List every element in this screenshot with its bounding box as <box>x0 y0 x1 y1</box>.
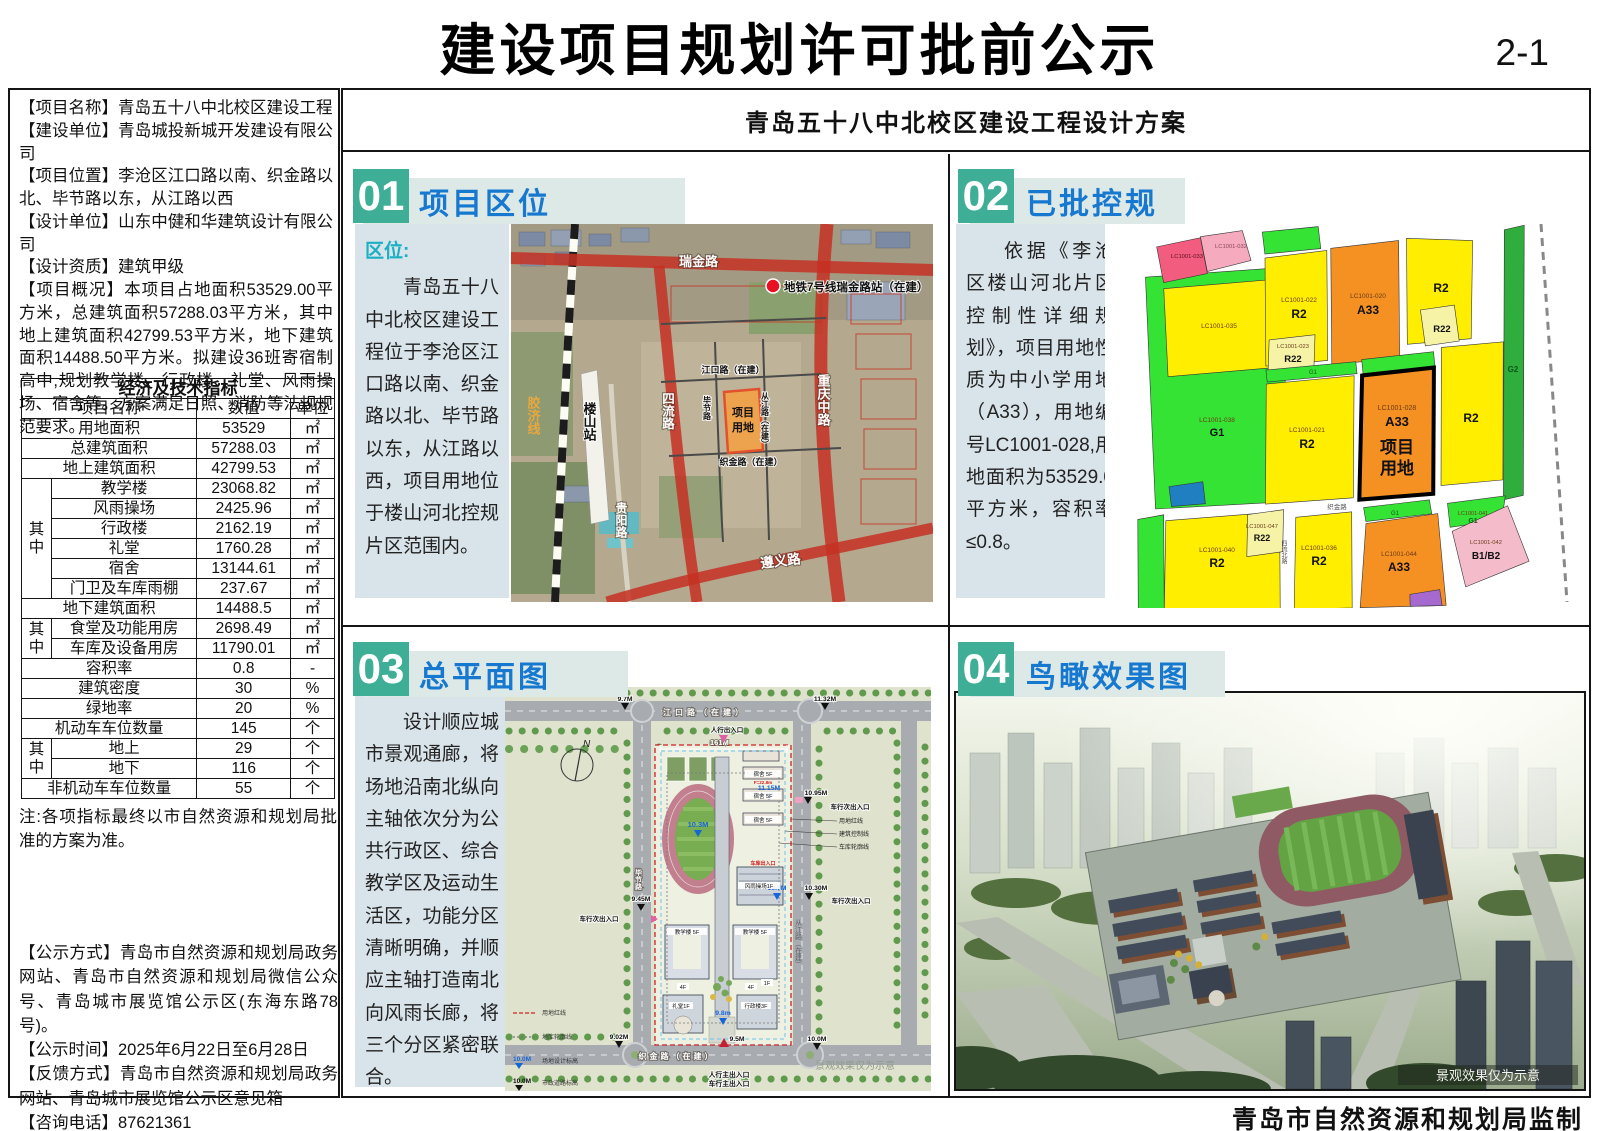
cell-value: 42799.53 <box>197 459 291 479</box>
notice-text: 87621361 <box>118 1114 191 1131</box>
panel-master-plan: 总平面图 03 设计顺应城市景观通廊，将场地沿南北纵向主轴依次分为公共行政区、综… <box>343 627 948 1096</box>
cell-name: 车库及设备用房 <box>51 639 196 659</box>
location-text-card: 区位: 青岛五十八中北校区建设工程位于李沧区江口路以南、织金路以北、毕节路以东，… <box>355 224 509 598</box>
bld-label-dorm: 宿舍 5F <box>754 770 774 778</box>
parcel-code: LC1001-040 <box>1199 547 1235 554</box>
plan-text-card: 依据《李沧区楼山河北片区控制性详细规划》，项目用地性质为中小学用地（A33），用… <box>956 224 1124 598</box>
cell-value: 145 <box>197 719 291 739</box>
site-label-line2: 用地 <box>1380 458 1414 478</box>
parcel-use: G1 <box>1309 370 1318 376</box>
birdseye-render-image: 景观效果仅为示意 <box>954 691 1586 1091</box>
bld-label-admin: 行政楼3F <box>745 1002 769 1010</box>
cell-name: 绿地率 <box>22 699 197 719</box>
cell-value: 53529 <box>197 419 291 439</box>
cell-name: 门卫及车库雨棚 <box>51 579 196 599</box>
bld-label-dorm: 宿舍 5F <box>754 792 774 800</box>
table-row: 其中食堂及功能用房2698.49㎡ <box>22 619 335 639</box>
info-label: 【项目位置】 <box>19 167 118 185</box>
congjiang-road-label: 从江路（在建） <box>760 392 770 448</box>
road-label-top: 江口路（在建） <box>663 707 747 717</box>
info-label: 【建设单位】 <box>19 122 118 140</box>
cell-value: 2425.96 <box>197 499 291 519</box>
section-title: 项目区位 <box>419 179 551 223</box>
cell-unit: 个 <box>291 759 335 779</box>
elev-label: 9.45M <box>632 896 651 903</box>
cell-unit: ㎡ <box>291 459 335 479</box>
table-note: 注:各项指标最终以市自然资源和规划局批准的方案为准。 <box>19 806 337 854</box>
cell-name: 礼堂 <box>51 539 196 559</box>
bld-label-hall: 礼堂1F <box>672 1002 690 1010</box>
elev-label: 11.15M <box>758 785 781 792</box>
project-info-sidebar: 【项目名称】青岛五十八中北校区建设工程 【建设单位】青岛城投新城开发建设有限公司… <box>8 88 340 1098</box>
section-number-badge: 01 <box>353 169 409 223</box>
table-row: 容积率0.8- <box>22 659 335 679</box>
table-row: 地下116个 <box>22 759 335 779</box>
parcel-code: LC1001-028 <box>1378 405 1417 412</box>
cell-unit: ㎡ <box>291 639 335 659</box>
info-label: 【设计单位】 <box>19 213 118 231</box>
col-header: 数值 <box>197 399 291 419</box>
notice-label: 【反馈方式】 <box>19 1065 120 1083</box>
north-label: N <box>583 739 591 750</box>
cell-name: 风雨操场 <box>51 499 196 519</box>
table-row: 绿地率20% <box>22 699 335 719</box>
panel-approved-plan: 已批控规 02 依据《李沧区楼山河北片区控制性详细规划》，项目用地性质为中小学用… <box>950 154 1589 625</box>
section-number-badge: 04 <box>958 642 1014 696</box>
cell-unit: ㎡ <box>291 599 335 619</box>
elev-label: 10.0M <box>808 1036 827 1043</box>
cell-value: 237.67 <box>197 579 291 599</box>
cell-group: 其中 <box>22 619 52 659</box>
location-label: 区位: <box>365 236 499 268</box>
parcel-use: G2 <box>1508 365 1519 374</box>
dim-label: 161M <box>710 738 729 747</box>
plan-watermark: 景观效果仅为示意 <box>815 1059 895 1072</box>
loushan-station-label: 楼山站 <box>582 401 597 442</box>
table-row: 总建筑面积57288.03㎡ <box>22 439 335 459</box>
cell-unit: ㎡ <box>291 479 335 499</box>
table-row: 其中地上29个 <box>22 739 335 759</box>
cell-name: 地下 <box>51 759 196 779</box>
cell-unit: 个 <box>291 739 335 759</box>
parcel-use: R2 <box>1299 437 1315 451</box>
cell-name: 地上建筑面积 <box>22 459 197 479</box>
road-label: 四流北路 <box>1280 540 1287 565</box>
elev-label: 10.3M <box>688 820 709 829</box>
table-row: 宿舍13144.61㎡ <box>22 559 335 579</box>
section-title: 已批控规 <box>1026 179 1158 223</box>
cell-unit: ㎡ <box>291 559 335 579</box>
callout-garage-line: 车库轮廓线 <box>839 843 869 851</box>
col-header: 项目名称 <box>22 399 197 419</box>
info-line-builder: 【建设单位】青岛城投新城开发建设有限公司 <box>19 120 333 166</box>
publicity-notices: 【公示方式】青岛市自然资源和规划局政务网站、青岛市自然资源和规划局微信公众号、青… <box>19 941 338 1131</box>
site-plan-map: N 161M 9.7M 11.32M 人行出入口 <box>505 687 931 1091</box>
cell-name: 地上 <box>51 739 196 759</box>
cell-value: 0.8 <box>197 659 291 679</box>
parcel-use: G1 <box>1391 511 1400 517</box>
info-line-location: 【项目位置】李沧区江口路以南、织金路以北、毕节路以东，从江路以西 <box>19 165 333 211</box>
callout-control-line: 建筑控制线 <box>839 830 869 838</box>
cell-unit: ㎡ <box>291 519 335 539</box>
col-header: 单位 <box>291 399 335 419</box>
cell-value: 2698.49 <box>197 619 291 639</box>
notice-feedback: 【反馈方式】青岛市自然资源和规划局政务网站、青岛城市展览馆公示区意见箱 <box>19 1062 338 1111</box>
section-number-badge: 03 <box>353 642 409 696</box>
parcel-code: LC1001-032 <box>1215 244 1247 250</box>
zoning-map: LC1001-033 LC1001-032 LC1001-035 LC1001-… <box>1105 210 1587 608</box>
design-scheme-frame: 青岛五十八中北校区建设工程设计方案 项目区位 01 区位: 青岛五十八中北校区建… <box>341 88 1591 1098</box>
parcel-code: LC1001-033 <box>1171 254 1203 260</box>
parcel-use: R2 <box>1433 281 1449 295</box>
info-label: 【设计资质】 <box>19 258 118 276</box>
cell-value: 55 <box>197 779 291 799</box>
notice-label: 【公示方式】 <box>19 944 120 962</box>
parcel-use: R22 <box>1254 533 1271 543</box>
parcel-use: B1/B2 <box>1472 551 1501 562</box>
project-site-parcel <box>724 389 763 453</box>
zhijin-road-label: 织金路（在建） <box>719 456 782 467</box>
chongqing-road-label: 重庆中路 <box>816 373 832 426</box>
elev-label: 11.32M <box>814 696 837 703</box>
cell-value: 11790.01 <box>197 639 291 659</box>
entry-label: 车行主出入口 <box>709 1079 750 1088</box>
east-road <box>901 701 917 1065</box>
cell-value: 57288.03 <box>197 439 291 459</box>
cell-name: 机动车车位数量 <box>22 719 197 739</box>
siliu-road-label: 四流路 <box>660 392 674 430</box>
supervisor-footer: 青岛市自然资源和规划局监制 <box>1232 1100 1583 1131</box>
info-text: 建筑甲级 <box>118 258 184 276</box>
info-line-project-name: 【项目名称】青岛五十八中北校区建设工程 <box>19 97 333 120</box>
parcel-use: R2 <box>1209 556 1225 570</box>
parcel-use: R2 <box>1463 411 1479 425</box>
cell-name: 非机动车车位数量 <box>22 779 197 799</box>
cell-value: 20 <box>197 699 291 719</box>
callout-red-line: 用地红线 <box>839 817 863 825</box>
bld-label-floors: 4F <box>680 985 687 991</box>
cell-name: 用地面积 <box>22 419 197 439</box>
section-title: 总平面图 <box>419 652 551 696</box>
cell-group: 其中 <box>22 739 52 779</box>
legend-garage-line: 地库轮廓线 <box>542 1033 572 1041</box>
cell-value: 29 <box>197 739 291 759</box>
satellite-location-map: 地铁7号线瑞金路站（在建） 瑞金路 胶济线 楼山站 四流路 重庆中路 贵阳路 遵… <box>511 224 933 602</box>
table-row: 地下建筑面积14488.5㎡ <box>22 599 335 619</box>
table-row: 其中教学楼23068.82㎡ <box>22 479 335 499</box>
parcel-use: G1 <box>1468 518 1477 525</box>
indicator-table: 经济及技术指标 项目名称数值单位 用地面积53529㎡ 总建筑面积57288.0… <box>21 378 335 799</box>
cell-unit: ㎡ <box>291 619 335 639</box>
parcel-code: LC1001-047 <box>1246 524 1278 530</box>
cell-name: 建筑密度 <box>22 679 197 699</box>
cell-value: 116 <box>197 759 291 779</box>
elev-label: 9.5M <box>729 1036 744 1043</box>
info-label: 【项目名称】 <box>19 99 118 117</box>
elev-label: 9.8m <box>715 1010 731 1017</box>
entry-label: 车行次出入口 <box>580 914 619 923</box>
elev-label: 10.95M <box>805 790 828 797</box>
panel-birdseye-render: 鸟瞰效果图 04 <box>950 627 1589 1096</box>
cell-unit: ㎡ <box>291 579 335 599</box>
cell-unit: 个 <box>291 719 335 739</box>
info-label: 【项目概况】 <box>19 281 124 299</box>
parcel-code: LC1001-044 <box>1381 551 1417 558</box>
section-banner: 项目区位 <box>363 178 685 224</box>
four-panel-grid: 项目区位 01 区位: 青岛五十八中北校区建设工程位于李沧区江口路以南、织金路以… <box>343 154 1589 1096</box>
road-label-right: 从江路（在建） <box>795 919 803 968</box>
cell-name: 地下建筑面积 <box>22 599 197 619</box>
legend-black-value: 10.0M <box>513 1078 531 1085</box>
parcel-use: R2 <box>1311 554 1327 568</box>
elev-label: 10.30M <box>805 885 828 892</box>
guiyang-road-label: 贵阳路 <box>614 501 628 539</box>
cell-value: 2162.19 <box>197 519 291 539</box>
notice-label: 【咨询电话】 <box>19 1114 118 1131</box>
entry-label: 人行出入口 <box>711 725 744 734</box>
masterplan-paragraph: 设计顺应城市景观通廊，将场地沿南北纵向主轴依次分为公共行政区、综合教学区及运动生… <box>365 707 499 1095</box>
entry-label: 车行次出入口 <box>832 896 871 905</box>
parcel-code: LC1001-023 <box>1277 344 1309 350</box>
bld-label-teach: 教学楼 5F <box>675 928 700 936</box>
road-label-left: 毕节路 <box>634 868 642 891</box>
cell-value: 13144.61 <box>197 559 291 579</box>
cell-unit: ㎡ <box>291 439 335 459</box>
parcel-code: LC1001-038 <box>1199 417 1235 424</box>
table-row: 地上建筑面积42799.53㎡ <box>22 459 335 479</box>
entry-label: 人行主出入口 <box>709 1070 750 1079</box>
cell-name: 总建筑面积 <box>22 439 197 459</box>
bld-label-floors: 4F <box>748 985 755 991</box>
parcel-use: R22 <box>1284 354 1301 365</box>
legend-road-elev: 市政道路标高 <box>542 1079 578 1087</box>
table-title-row: 经济及技术指标 <box>22 379 335 399</box>
cell-value: 30 <box>197 679 291 699</box>
parcel-code: LC1001-042 <box>1470 540 1502 546</box>
masterplan-text-card: 设计顺应城市景观通廊，将场地沿南北纵向主轴依次分为公共行政区、综合教学区及运动生… <box>355 695 509 1087</box>
parcel-code: LC1001-020 <box>1350 293 1386 300</box>
elev-label: 9.02M <box>610 1034 629 1041</box>
parcel-code: LC1001-035 <box>1201 323 1237 330</box>
elev-label: 9.7M <box>617 696 632 703</box>
render-watermark: 景观效果仅为示意 <box>1436 1068 1540 1083</box>
table-row: 门卫及车库雨棚237.67㎡ <box>22 579 335 599</box>
table-row: 非机动车车位数量55个 <box>22 779 335 799</box>
metro-station-label: 地铁7号线瑞金路站（在建） <box>784 280 928 294</box>
parcel-code: LC1001-022 <box>1281 297 1317 304</box>
notice-period: 【公示时间】2025年6月22日至6月28日 <box>19 1038 338 1062</box>
parcel-code: LC1001-041 <box>1458 511 1488 517</box>
road-label: 织金路 <box>1327 502 1347 511</box>
table-row: 礼堂1760.28㎡ <box>22 539 335 559</box>
cell-unit: % <box>291 679 335 699</box>
cell-unit: - <box>291 659 335 679</box>
parcel-green-edge-bottomleft <box>1136 515 1167 608</box>
site-label-line1: 项目 <box>732 406 754 419</box>
cell-name: 宿舍 <box>51 559 196 579</box>
section-title: 鸟瞰效果图 <box>1026 652 1191 696</box>
table-row: 风雨操场2425.96㎡ <box>22 499 335 519</box>
page-number: 2-1 <box>1496 32 1549 74</box>
panel-project-location: 项目区位 01 区位: 青岛五十八中北校区建设工程位于李沧区江口路以南、织金路以… <box>343 154 948 625</box>
legend-site-elev: 场地设计标高 <box>542 1057 578 1065</box>
info-line-qualification: 【设计资质】建筑甲级 <box>19 256 333 279</box>
jiangkou-road-label: 江口路（在建） <box>701 364 764 375</box>
cell-unit: ㎡ <box>291 499 335 519</box>
indicator-table-wrap: 经济及技术指标 项目名称数值单位 用地面积53529㎡ 总建筑面积57288.0… <box>21 378 335 799</box>
bld-label-teach: 教学楼 5F <box>743 928 768 936</box>
parcel-use: A33 <box>1385 414 1409 429</box>
notice-poster: 建设项目规划许可批前公示 2-1 【项目名称】青岛五十八中北校区建设工程 【建设… <box>0 0 1599 1131</box>
parcel-use: R22 <box>1433 324 1450 335</box>
bld-height: F=22.8m <box>754 780 773 785</box>
cell-group: 其中 <box>22 479 52 599</box>
table-row: 建筑密度30% <box>22 679 335 699</box>
cell-value: 1760.28 <box>197 539 291 559</box>
notice-method: 【公示方式】青岛市自然资源和规划局政务网站、青岛市自然资源和规划局微信公众号、青… <box>19 941 338 1038</box>
site-label-line2: 用地 <box>732 420 754 434</box>
site-label-line1: 项目 <box>1380 438 1414 457</box>
cell-unit: 个 <box>291 779 335 799</box>
info-text: 青岛五十八中北校区建设工程 <box>118 99 333 117</box>
notice-label: 【公示时间】 <box>19 1041 118 1059</box>
parcel-028-project-site <box>1356 368 1437 500</box>
section-number-badge: 02 <box>958 169 1014 223</box>
road-label-bottom: 织金路（在建） <box>639 1051 716 1061</box>
table-row: 车库及设备用房11790.01㎡ <box>22 639 335 659</box>
cell-name: 容积率 <box>22 659 197 679</box>
parcel-code: LC1001-036 <box>1301 545 1337 552</box>
jiaoji-line-label: 胶济线 <box>526 395 541 436</box>
table-header-row: 项目名称数值单位 <box>22 399 335 419</box>
cell-unit: ㎡ <box>291 419 335 439</box>
info-line-designer: 【设计单位】山东中健和华建筑设计有限公司 <box>19 211 333 257</box>
page-title: 建设项目规划许可批前公示 <box>0 6 1599 87</box>
parcel-code: LC1001-021 <box>1289 427 1325 434</box>
cell-unit: ㎡ <box>291 539 335 559</box>
table-row: 用地面积53529㎡ <box>22 419 335 439</box>
notice-text: 2025年6月22日至6月28日 <box>118 1041 309 1059</box>
cell-value: 23068.82 <box>197 479 291 499</box>
scheme-subtitle: 青岛五十八中北校区建设工程设计方案 <box>343 90 1589 152</box>
bld-label-dorm: 宿舍 5F <box>754 816 774 824</box>
parcel-use: A33 <box>1388 560 1410 574</box>
bld-label-floors: 1F <box>764 981 771 987</box>
parcel-use: A33 <box>1357 303 1379 317</box>
cell-name: 食堂及功能用房 <box>51 619 196 639</box>
table-row: 行政楼2162.19㎡ <box>22 519 335 539</box>
parcel-use: R2 <box>1291 307 1307 321</box>
legend-red-line: 用地红线 <box>542 1009 566 1017</box>
table-title: 经济及技术指标 <box>22 379 335 399</box>
legend-blue-value: 10.0M <box>513 1056 531 1063</box>
cell-name: 行政楼 <box>51 519 196 539</box>
garage-entry-label: 车库出入口 <box>750 860 775 867</box>
plan-paragraph: 依据《李沧区楼山河北片区控制性详细规划》，项目用地性质为中小学用地（A33），用… <box>966 236 1114 559</box>
cell-value: 14488.5 <box>197 599 291 619</box>
bld-label-gym: 风雨操场1F <box>745 882 774 890</box>
location-paragraph: 青岛五十八中北校区建设工程位于李沧区江口路以南、织金路以北、毕节路以东，从江路以… <box>365 272 499 563</box>
ruijin-road-label: 瑞金路 <box>679 254 719 269</box>
bijie-road-label: 毕节路 <box>702 395 712 421</box>
notice-phone: 【咨询电话】87621361 <box>19 1111 338 1131</box>
entry-label: 车行次出入口 <box>831 802 870 811</box>
cell-name: 教学楼 <box>51 479 196 499</box>
table-row: 机动车车位数量145个 <box>22 719 335 739</box>
metro-station-dot <box>766 279 780 293</box>
cell-unit: % <box>291 699 335 719</box>
parcel-use: G1 <box>1210 427 1225 439</box>
